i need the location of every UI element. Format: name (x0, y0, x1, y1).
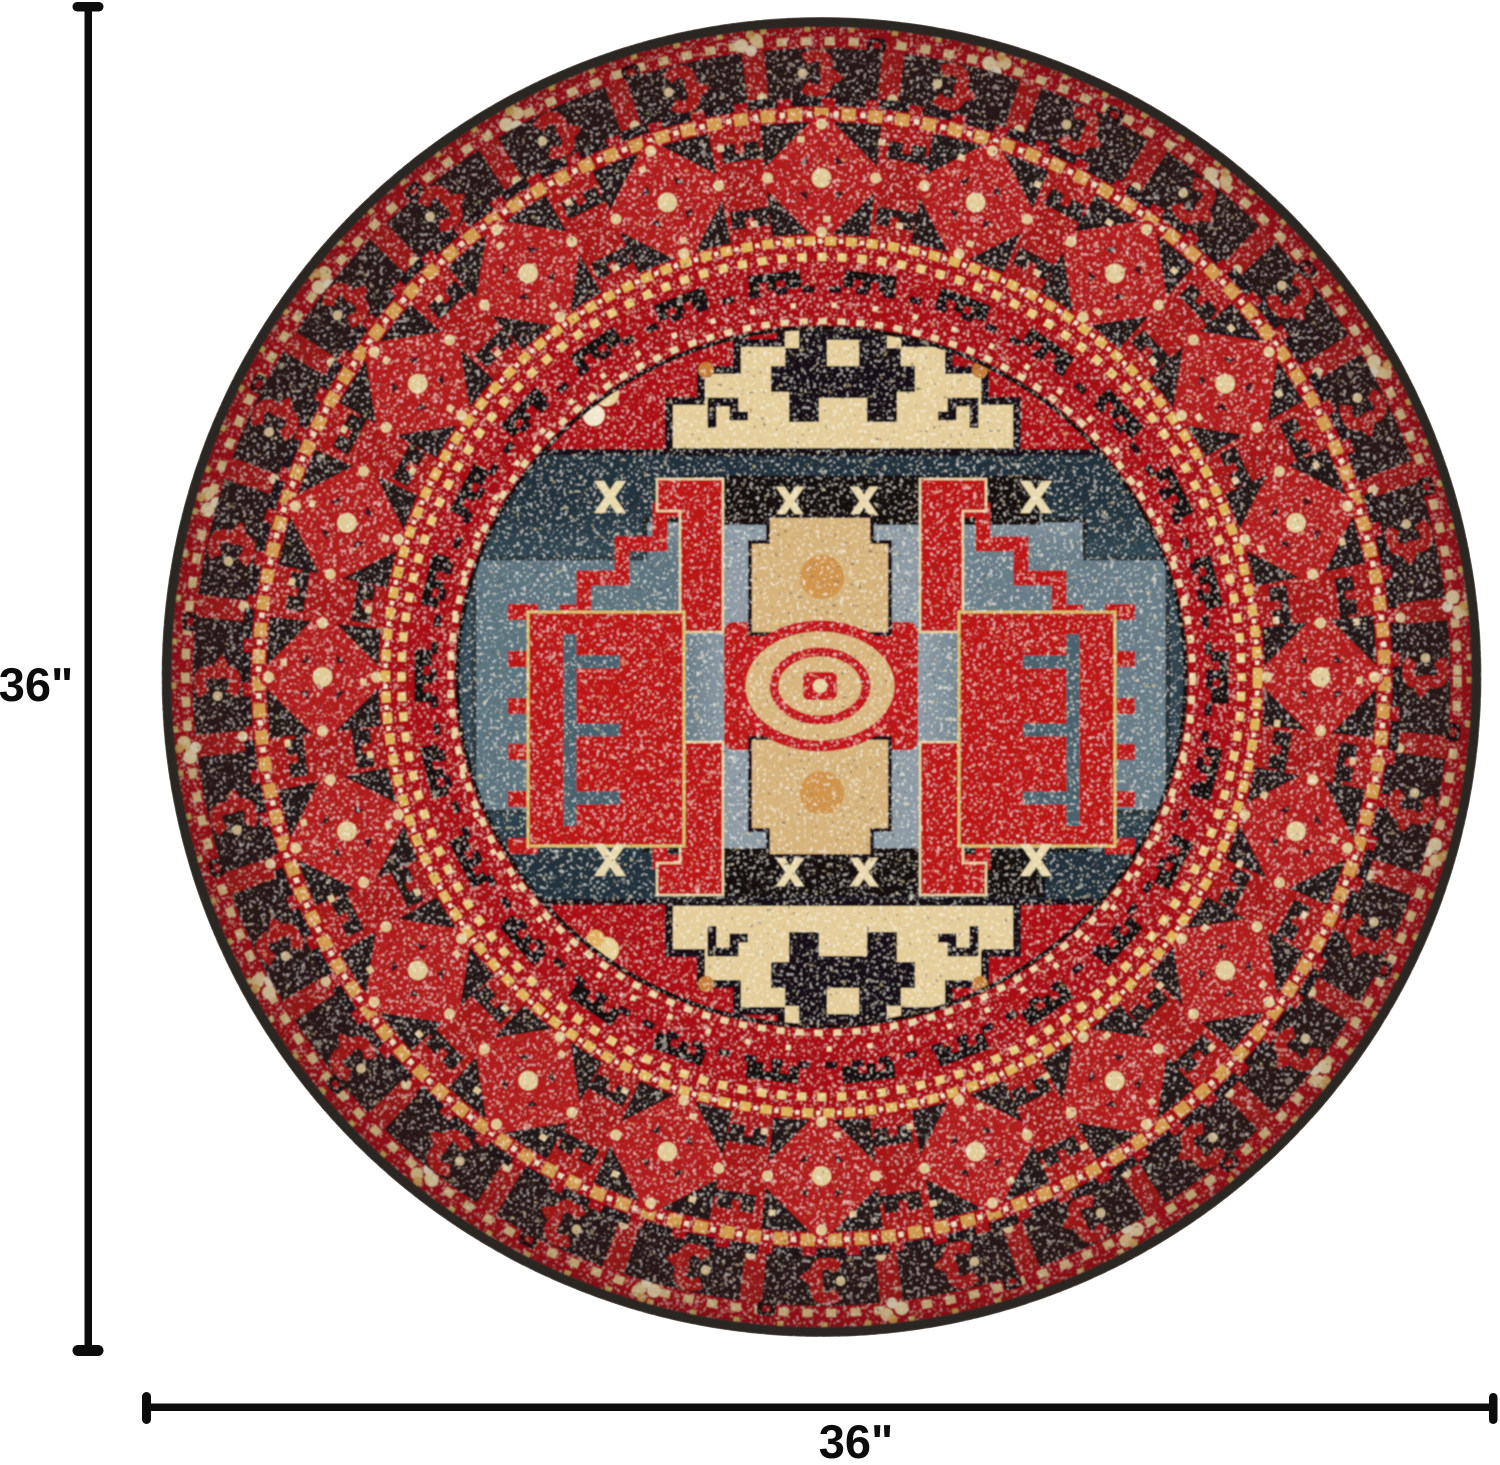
svg-text:36": 36" (819, 1415, 894, 1460)
svg-text:36": 36" (0, 658, 73, 711)
